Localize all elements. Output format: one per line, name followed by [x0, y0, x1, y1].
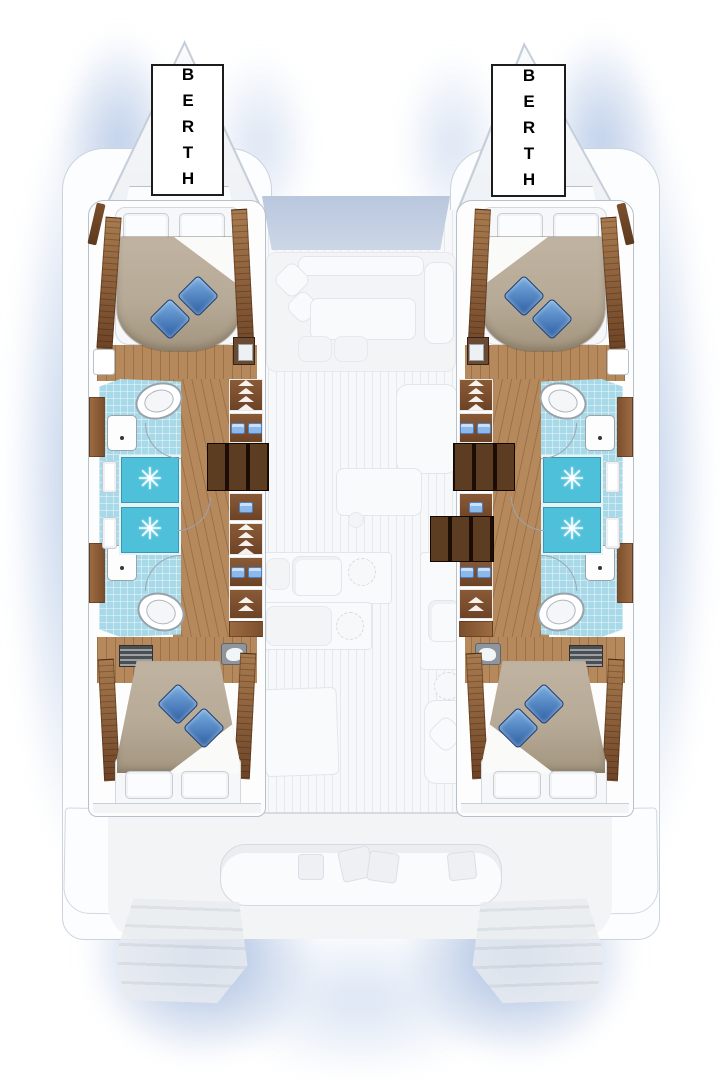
hanger-icon [238, 548, 254, 554]
nightstand [607, 349, 629, 375]
lounge-backrest [298, 256, 424, 276]
linen-stack [478, 567, 492, 578]
lounge-table [298, 336, 332, 362]
salon-sofa [396, 384, 458, 474]
nightstand [93, 349, 115, 375]
salon-windshield [258, 196, 454, 250]
bed-pillow [181, 771, 229, 799]
hanger-icon [468, 404, 484, 410]
linen-stack [461, 567, 475, 578]
shower-stall: ✳ [121, 457, 179, 503]
hanger-icon [238, 597, 254, 603]
linen-shelf [459, 413, 493, 443]
vanity-counter [89, 397, 105, 457]
berth-label-port: BERTH [151, 64, 224, 196]
washbasin [107, 415, 137, 451]
cabinet-top [229, 621, 263, 637]
hull-window [605, 517, 620, 549]
lounge-seat-center [310, 298, 416, 340]
starboard-companionway-stairs [430, 516, 494, 562]
lounge-table [334, 336, 368, 362]
linen-stack [469, 502, 483, 513]
hanger-icon [238, 380, 254, 386]
washbasin [585, 415, 615, 451]
companionway-stairs [207, 443, 269, 491]
stove-burner-icon [348, 558, 376, 586]
companionway-stairs [453, 443, 515, 491]
shower-stall: ✳ [543, 507, 601, 553]
shower-stall: ✳ [121, 507, 179, 553]
shower-drain-icon: ✳ [137, 465, 162, 495]
berth-label-text: BERTH [519, 66, 539, 196]
hull-window [102, 461, 117, 493]
hanger-icon [238, 396, 254, 402]
wardrobe-locker [229, 589, 263, 619]
hanger-icon [238, 532, 254, 538]
bench-pillow [298, 854, 324, 880]
galley-appliance [266, 606, 332, 646]
linen-stack [239, 502, 253, 513]
linen-shelf [229, 413, 263, 443]
wardrobe-locker [459, 379, 493, 411]
linen-stack [248, 423, 262, 434]
lounge-seat-right [424, 262, 454, 344]
linen-stack [231, 423, 245, 434]
hanger-icon [238, 524, 254, 530]
hull-window [605, 461, 620, 493]
bed-pillow [125, 771, 173, 799]
stove-burner-icon [336, 612, 364, 640]
hanger-icon [468, 597, 484, 603]
starboard-hull: ✳ ✳ [456, 200, 634, 817]
linen-stack [231, 567, 245, 578]
hanger-icon [238, 404, 254, 410]
bed-pillow [493, 771, 541, 799]
hull-window [102, 517, 117, 549]
linen-shelf [229, 493, 263, 521]
bench-pillow [366, 850, 400, 884]
boat-floor-plan: ✳ ✳ [0, 0, 720, 1080]
hanger-icon [238, 388, 254, 394]
bed-pillow [549, 771, 597, 799]
hanger-icon [468, 396, 484, 402]
hanger-icon [238, 605, 254, 611]
hanger-icon [468, 605, 484, 611]
linen-stack [461, 423, 475, 434]
hanger-icon [468, 388, 484, 394]
hanger-icon [468, 380, 484, 386]
vanity-counter [617, 397, 633, 457]
cabin-locker [233, 337, 255, 365]
cabinet-top [459, 621, 493, 637]
shower-drain-icon: ✳ [559, 515, 584, 545]
linen-shelf [229, 557, 263, 587]
shower-drain-icon: ✳ [559, 465, 584, 495]
vanity-counter [89, 543, 105, 603]
salon-detail [348, 512, 364, 528]
bow-wall-trim [87, 203, 105, 246]
berth-label-starboard: BERTH [491, 64, 566, 197]
port-hull: ✳ ✳ [88, 200, 266, 817]
salon-bench [336, 468, 422, 516]
vanity-counter [617, 543, 633, 603]
berth-label-text: BERTH [178, 65, 198, 195]
oven-icon [266, 558, 290, 590]
linen-stack [478, 423, 492, 434]
wardrobe-locker [229, 379, 263, 411]
shower-drain-icon: ✳ [137, 515, 162, 545]
linen-stack [248, 567, 262, 578]
wardrobe-locker [229, 523, 263, 555]
hanger-icon [238, 540, 254, 546]
water-glow-aft-center [210, 920, 510, 1080]
transom-step [461, 803, 629, 813]
bench-pillow [447, 851, 478, 882]
bow-wall-trim [616, 203, 634, 246]
wardrobe-locker [459, 589, 493, 619]
galley-sink [292, 556, 342, 596]
cabin-locker [467, 337, 489, 365]
shower-stall: ✳ [543, 457, 601, 503]
dinette-table [262, 687, 339, 778]
transom-step [93, 803, 261, 813]
